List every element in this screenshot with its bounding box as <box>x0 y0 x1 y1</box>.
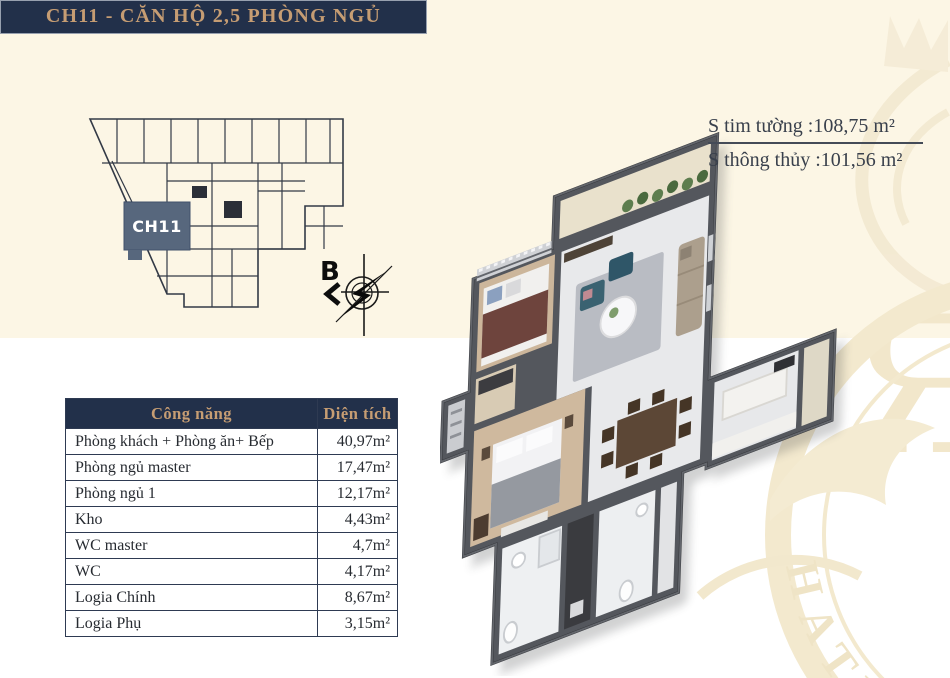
keyplan-cores <box>192 186 242 218</box>
room-name-cell: WC master <box>66 533 318 559</box>
room-area-cell: 4,17m² <box>318 559 398 585</box>
table-row: Kho4,43m² <box>66 507 398 533</box>
table-row: Phòng khách + Phòng ăn+ Bếp40,97m² <box>66 429 398 455</box>
room-area-cell: 4,43m² <box>318 507 398 533</box>
room-area-cell: 4,7m² <box>318 533 398 559</box>
net-area-line: S thông thủy :101,56 m² <box>708 148 923 172</box>
table-row: WC4,17m² <box>66 559 398 585</box>
room-area-cell: 12,17m² <box>318 481 398 507</box>
room-area-cell: 3,15m² <box>318 611 398 637</box>
room-name-cell: Logia Phụ <box>66 611 318 637</box>
compass-icon: B <box>312 250 408 346</box>
room-name-cell: Phòng ngủ 1 <box>66 481 318 507</box>
unit-highlight: CH11 <box>124 202 190 260</box>
header-function: Công năng <box>66 399 318 429</box>
table-row: Phòng ngủ 112,17m² <box>66 481 398 507</box>
brochure-page: Я HATECO CH11 - CĂN HỘ 2,5 PHÒNG NGỦ <box>0 0 950 678</box>
table-row: Logia Phụ3,15m² <box>66 611 398 637</box>
room-area-cell: 40,97m² <box>318 429 398 455</box>
table-header-row: Công năng Diện tích <box>66 399 398 429</box>
room-name-cell: Logia Chính <box>66 585 318 611</box>
gross-area-line: S tim tường :108,75 m² <box>708 114 923 144</box>
room-area-table: Công năng Diện tích Phòng khách + Phòng … <box>65 398 398 637</box>
room-name-cell: Phòng ngủ master <box>66 455 318 481</box>
room-area-cell: 8,67m² <box>318 585 398 611</box>
floorplan-3d-render <box>440 88 912 676</box>
page-title: CH11 - CĂN HỘ 2,5 PHÒNG NGỦ <box>0 0 427 34</box>
room-name-cell: Phòng khách + Phòng ăn+ Bếp <box>66 429 318 455</box>
west-chevron-icon <box>327 284 339 304</box>
unit-label: CH11 <box>132 217 181 236</box>
north-label: B <box>320 257 340 287</box>
table-row: WC master4,7m² <box>66 533 398 559</box>
header-area: Diện tích <box>318 399 398 429</box>
area-summary: S tim tường :108,75 m² S thông thủy :101… <box>708 114 923 172</box>
room-name-cell: WC <box>66 559 318 585</box>
table-row: Phòng ngủ master17,47m² <box>66 455 398 481</box>
room-name-cell: Kho <box>66 507 318 533</box>
table-row: Logia Chính8,67m² <box>66 585 398 611</box>
room-area-cell: 17,47m² <box>318 455 398 481</box>
